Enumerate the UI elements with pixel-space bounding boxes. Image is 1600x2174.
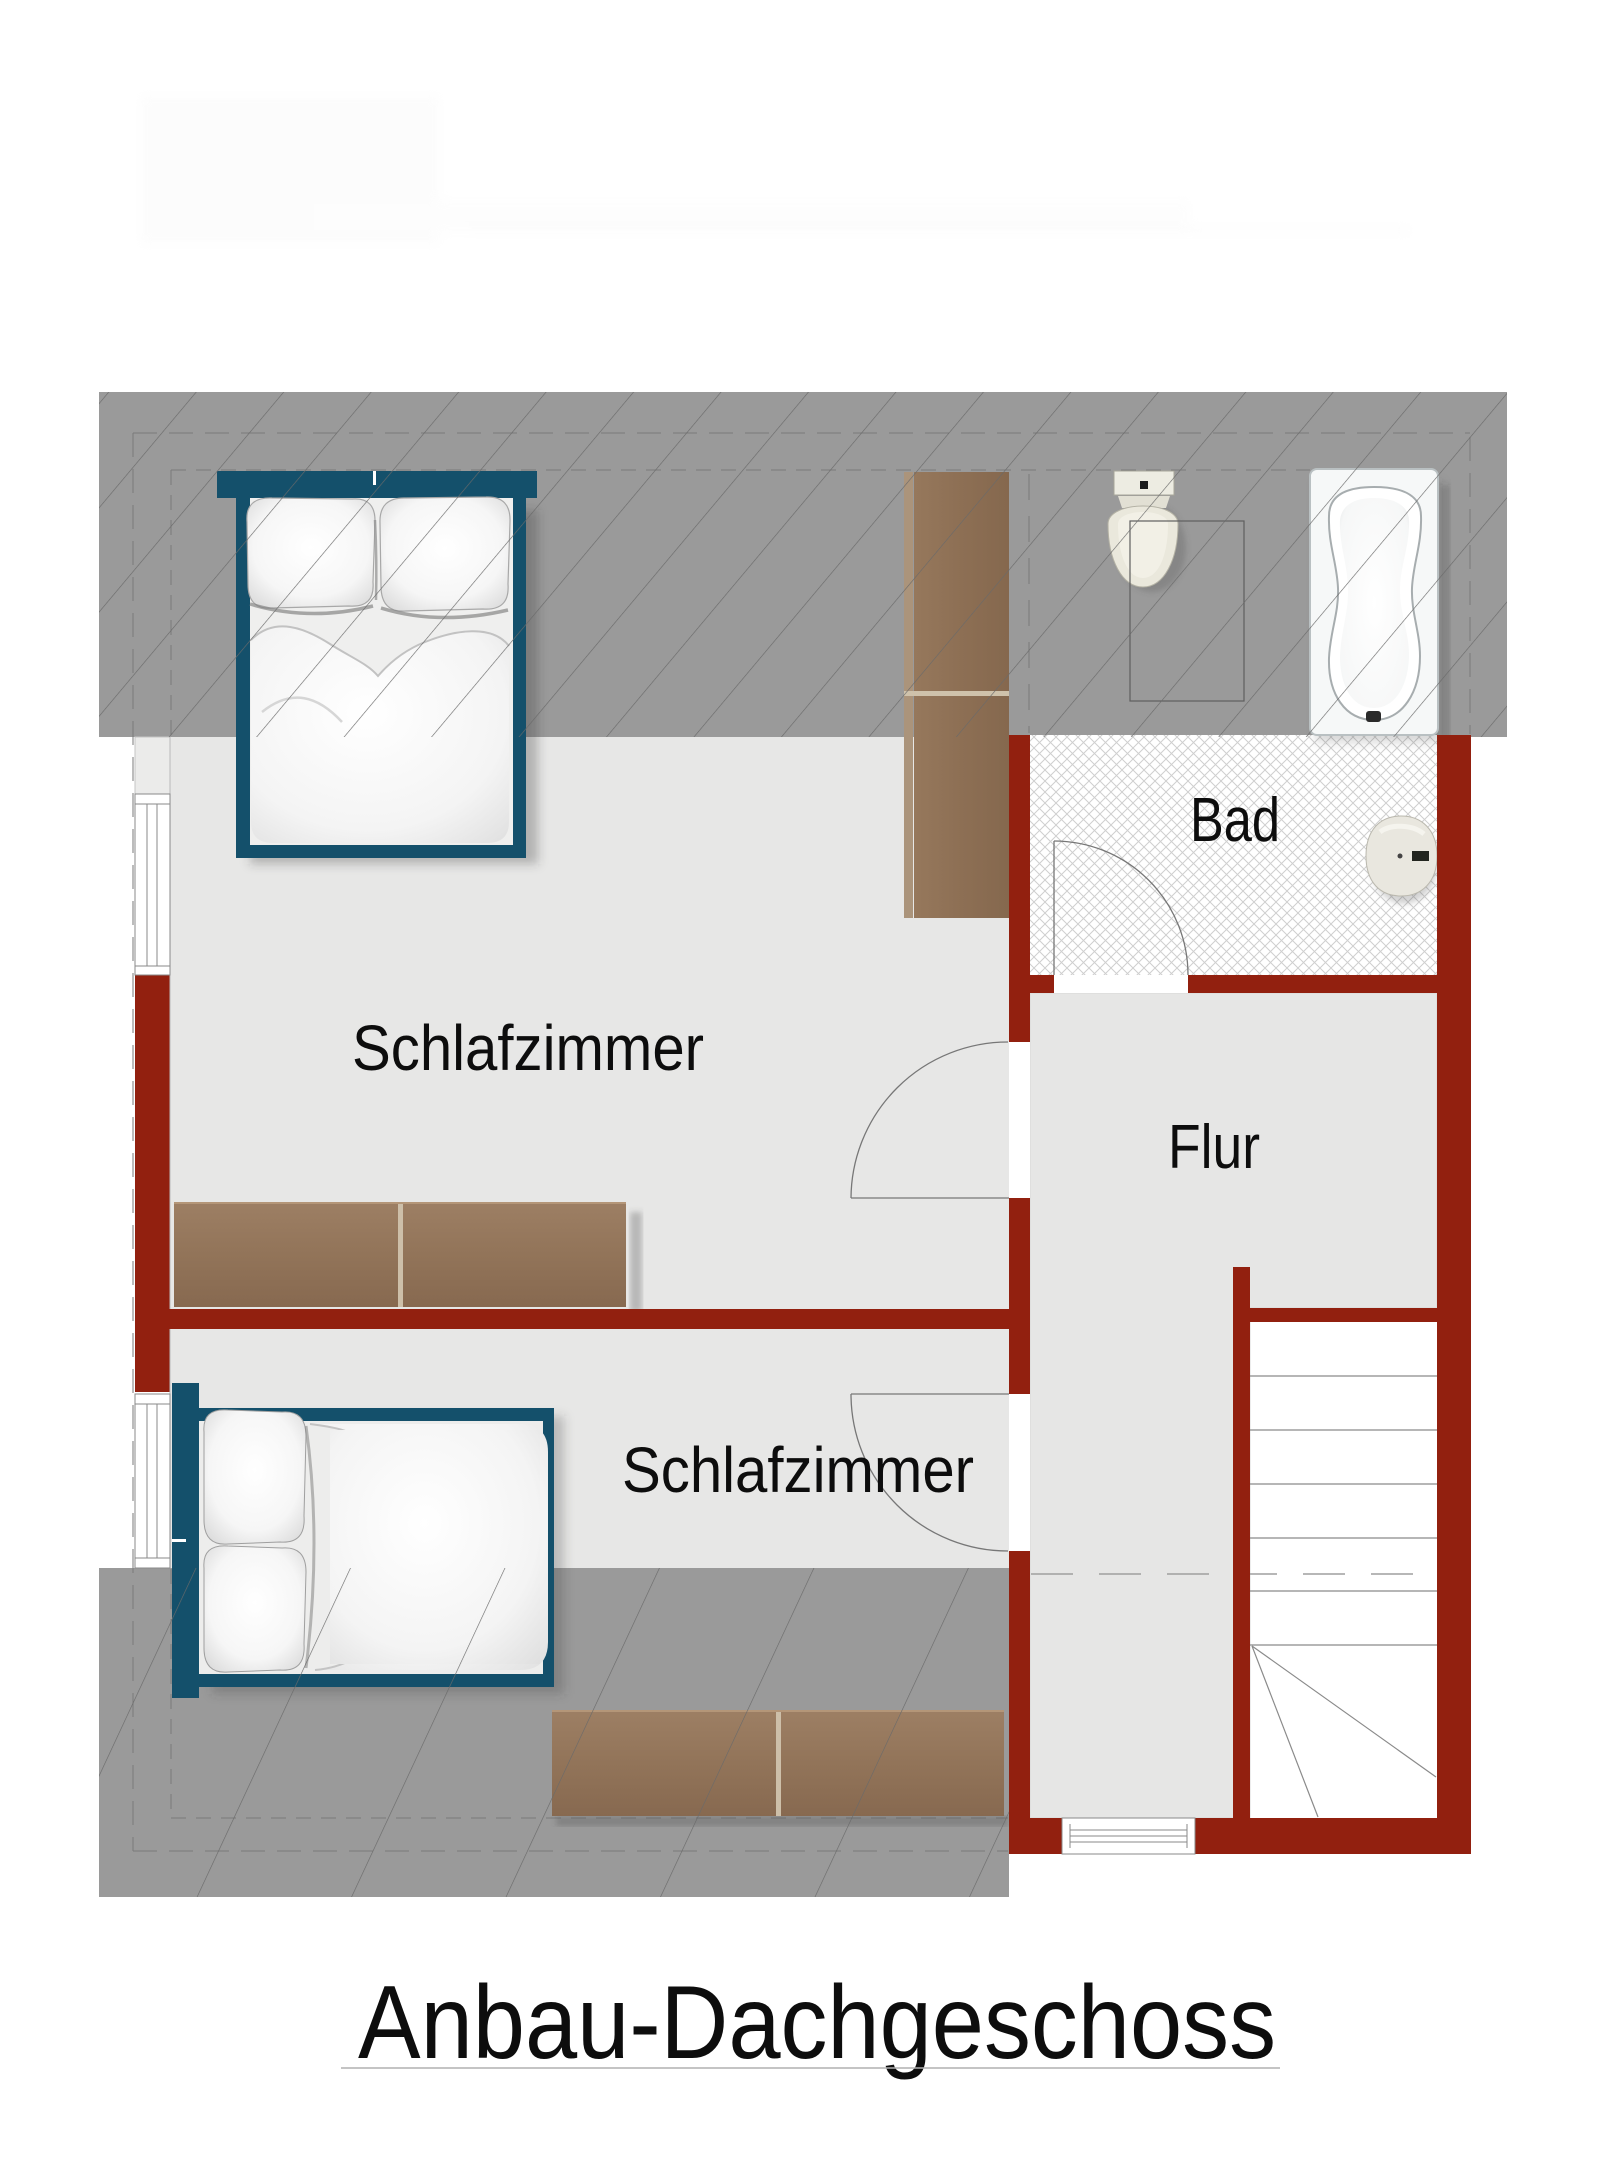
svg-text:Bad: Bad — [1190, 786, 1280, 855]
svg-text:Anbau-Dachgeschoss: Anbau-Dachgeschoss — [358, 1965, 1276, 2081]
svg-text:Schlafzimmer: Schlafzimmer — [622, 1434, 974, 1506]
svg-text:Flur: Flur — [1168, 1113, 1260, 1182]
svg-text:Schlafzimmer: Schlafzimmer — [352, 1012, 704, 1084]
